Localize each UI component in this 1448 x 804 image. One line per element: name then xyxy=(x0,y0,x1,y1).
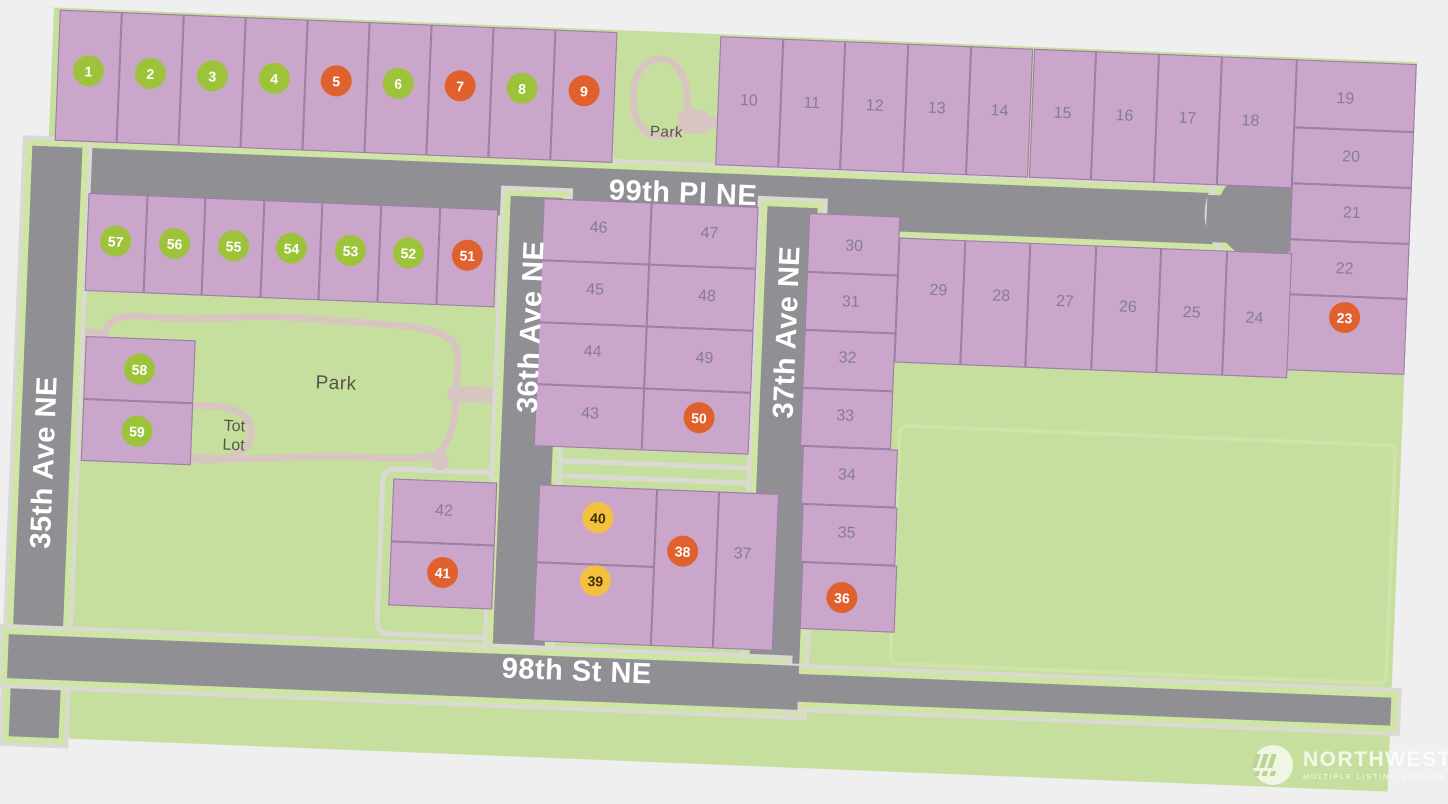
lot-number-20: 20 xyxy=(1342,148,1361,167)
street-label-35th-ave-ne: 35th Ave NE xyxy=(25,376,65,550)
lot-number-49: 49 xyxy=(695,349,714,368)
lot-number-25: 25 xyxy=(1182,304,1201,323)
lot-number-22: 22 xyxy=(1335,260,1354,279)
street-label-36th-ave-ne: 36th Ave NE xyxy=(512,240,552,414)
lot-number-31: 31 xyxy=(842,293,861,312)
lot-number-43: 43 xyxy=(581,405,600,424)
lot-parcel-38 xyxy=(651,489,719,648)
lot-number-26: 26 xyxy=(1119,298,1138,317)
lot-number-15: 15 xyxy=(1053,105,1072,124)
plat-map: 1234567891011121314151617181920212223242… xyxy=(0,6,1421,797)
lot-number-32: 32 xyxy=(838,349,857,368)
street-label-37th-ave-ne: 37th Ave NE xyxy=(768,245,808,419)
lot-number-46: 46 xyxy=(589,219,608,238)
park-label-north: Park xyxy=(650,123,683,141)
tot-lot-line1: Tot xyxy=(223,417,246,437)
plat-map-image: 1234567891011121314151617181920212223242… xyxy=(0,0,1448,804)
lot-number-30: 30 xyxy=(845,237,864,256)
lot-number-33: 33 xyxy=(836,407,855,426)
lot-parcel-37 xyxy=(713,492,779,651)
lot-number-34: 34 xyxy=(838,466,857,485)
lot-number-11: 11 xyxy=(803,95,820,114)
tot-lot-label: Tot Lot xyxy=(222,417,246,456)
lot-number-47: 47 xyxy=(700,225,719,244)
lot-number-10: 10 xyxy=(740,92,759,111)
lot-parcel-29 xyxy=(894,238,964,366)
nwmls-tagline-text: MULTIPLE LISTING SERVICE xyxy=(1303,772,1448,781)
lot-number-12: 12 xyxy=(865,97,884,116)
lot-number-45: 45 xyxy=(586,281,605,300)
lot-number-18: 18 xyxy=(1241,112,1260,131)
lot-number-16: 16 xyxy=(1115,107,1134,126)
lot-number-29: 29 xyxy=(929,282,948,301)
tot-lot-line2: Lot xyxy=(222,436,245,456)
lot-number-14: 14 xyxy=(990,102,1009,121)
lot-parcel-19 xyxy=(1294,59,1417,132)
nwmls-watermark: NORTHWEST MULTIPLE LISTING SERVICE xyxy=(1252,744,1448,786)
lot-number-17: 17 xyxy=(1178,110,1197,129)
lot-number-44: 44 xyxy=(583,343,602,362)
lot-number-28: 28 xyxy=(992,287,1011,306)
lot-number-35: 35 xyxy=(837,524,856,543)
street-label-98th-st-ne: 98th St NE xyxy=(501,652,652,691)
lot-number-42: 42 xyxy=(435,502,454,521)
lot-number-13: 13 xyxy=(927,100,946,119)
street-label-99th-pl-ne: 99th Pl NE xyxy=(608,174,758,213)
lots-layer: 1234567891011121314151617181920212223242… xyxy=(0,6,1421,797)
lot-number-27: 27 xyxy=(1056,293,1075,312)
lot-number-19: 19 xyxy=(1336,90,1355,109)
lot-number-37: 37 xyxy=(733,545,752,564)
lot-number-48: 48 xyxy=(698,288,717,307)
nwmls-brand-text: NORTHWEST xyxy=(1303,749,1448,771)
park-label: Park xyxy=(315,372,357,396)
lot-number-24: 24 xyxy=(1245,310,1264,329)
lot-number-21: 21 xyxy=(1342,204,1361,223)
nwmls-logo-icon xyxy=(1252,744,1294,786)
